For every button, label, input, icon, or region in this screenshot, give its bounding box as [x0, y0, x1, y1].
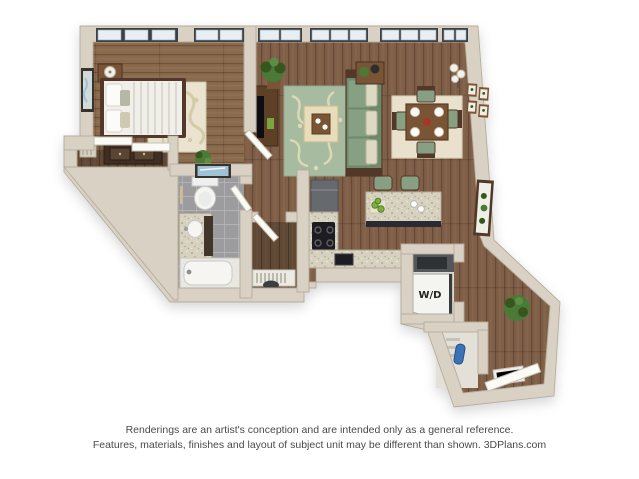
window-group-corner	[442, 28, 468, 42]
coat-closet-wall-right	[478, 330, 488, 374]
pear	[378, 206, 384, 212]
pear	[375, 198, 381, 204]
bedroom-wall-art	[81, 68, 94, 112]
cooktop	[312, 222, 335, 250]
washer-dryer-label: W/D	[419, 290, 442, 301]
centerpiece	[423, 118, 431, 126]
kitchen-counter-bottom	[309, 250, 404, 268]
towel-bar	[180, 186, 183, 204]
bed	[100, 78, 186, 138]
plate	[411, 128, 420, 137]
floor-plan-page: W/D	[0, 0, 639, 479]
dining-table	[406, 104, 448, 140]
faucet	[184, 227, 188, 231]
sofa	[346, 70, 382, 176]
bathroom-cabinet	[204, 216, 213, 256]
tub-faucet	[187, 270, 192, 275]
window-group-living-right	[310, 28, 368, 42]
plate	[435, 108, 444, 117]
toilet	[192, 177, 218, 210]
laundry-wall-left	[401, 244, 413, 324]
plate	[411, 108, 420, 117]
bathroom-corner-wall	[64, 167, 178, 300]
disclaimer-line-2: Features, materials, finishes and layout…	[0, 438, 639, 453]
tray	[312, 114, 330, 134]
small-plant	[359, 67, 369, 77]
partition-bedroom-living	[244, 26, 256, 132]
disclaimer-line-1: Renderings are an artist's conception an…	[0, 423, 639, 438]
bathtub	[180, 258, 240, 288]
ottoman-coffee-table	[304, 106, 338, 142]
disclaimer: Renderings are an artist's conception an…	[0, 423, 639, 452]
tv-console	[254, 86, 278, 146]
decor-green	[267, 118, 274, 129]
window-group-dining	[380, 28, 438, 42]
laundry-wall-right-lower	[454, 302, 464, 324]
window-group-living-left	[258, 28, 302, 42]
partition-kitchen-hall	[297, 170, 309, 292]
plate	[435, 128, 444, 137]
pillow	[106, 110, 122, 132]
laundry-closet: W/D	[413, 254, 454, 314]
decor-orb	[371, 65, 380, 74]
partition-closet-left-stub	[64, 136, 94, 150]
laundry-wall-right-upper	[454, 244, 464, 262]
accent-pillow	[120, 112, 130, 128]
bar-stool	[401, 176, 419, 190]
potted-plant-entry	[504, 295, 530, 321]
back-pillow	[366, 140, 377, 164]
cup	[315, 118, 320, 123]
window-group-bedroom-left	[96, 28, 178, 42]
cup	[411, 201, 418, 208]
sofa-side-table	[356, 62, 384, 84]
bathroom-wall-art	[195, 164, 231, 178]
bar-stool	[374, 176, 392, 190]
dining-chair	[417, 142, 435, 158]
under-counter-appliance	[335, 254, 353, 265]
cup	[418, 206, 425, 213]
partition-hallway-upper	[240, 176, 252, 184]
back-pillow	[366, 82, 377, 106]
accent-pillow	[120, 90, 130, 106]
window-group-bedroom-right	[194, 28, 244, 42]
vanity-sink	[179, 213, 213, 258]
apartment-unit: W/D	[64, 26, 560, 407]
floor-plan-rendering: W/D	[0, 0, 639, 479]
cup	[322, 124, 327, 129]
shelf	[446, 338, 460, 341]
tv	[257, 96, 264, 138]
back-pillow	[366, 111, 377, 135]
dining-chair	[417, 86, 435, 102]
partition-hallway-lower	[240, 210, 252, 298]
pillow	[106, 84, 122, 106]
refrigerator	[311, 180, 338, 212]
